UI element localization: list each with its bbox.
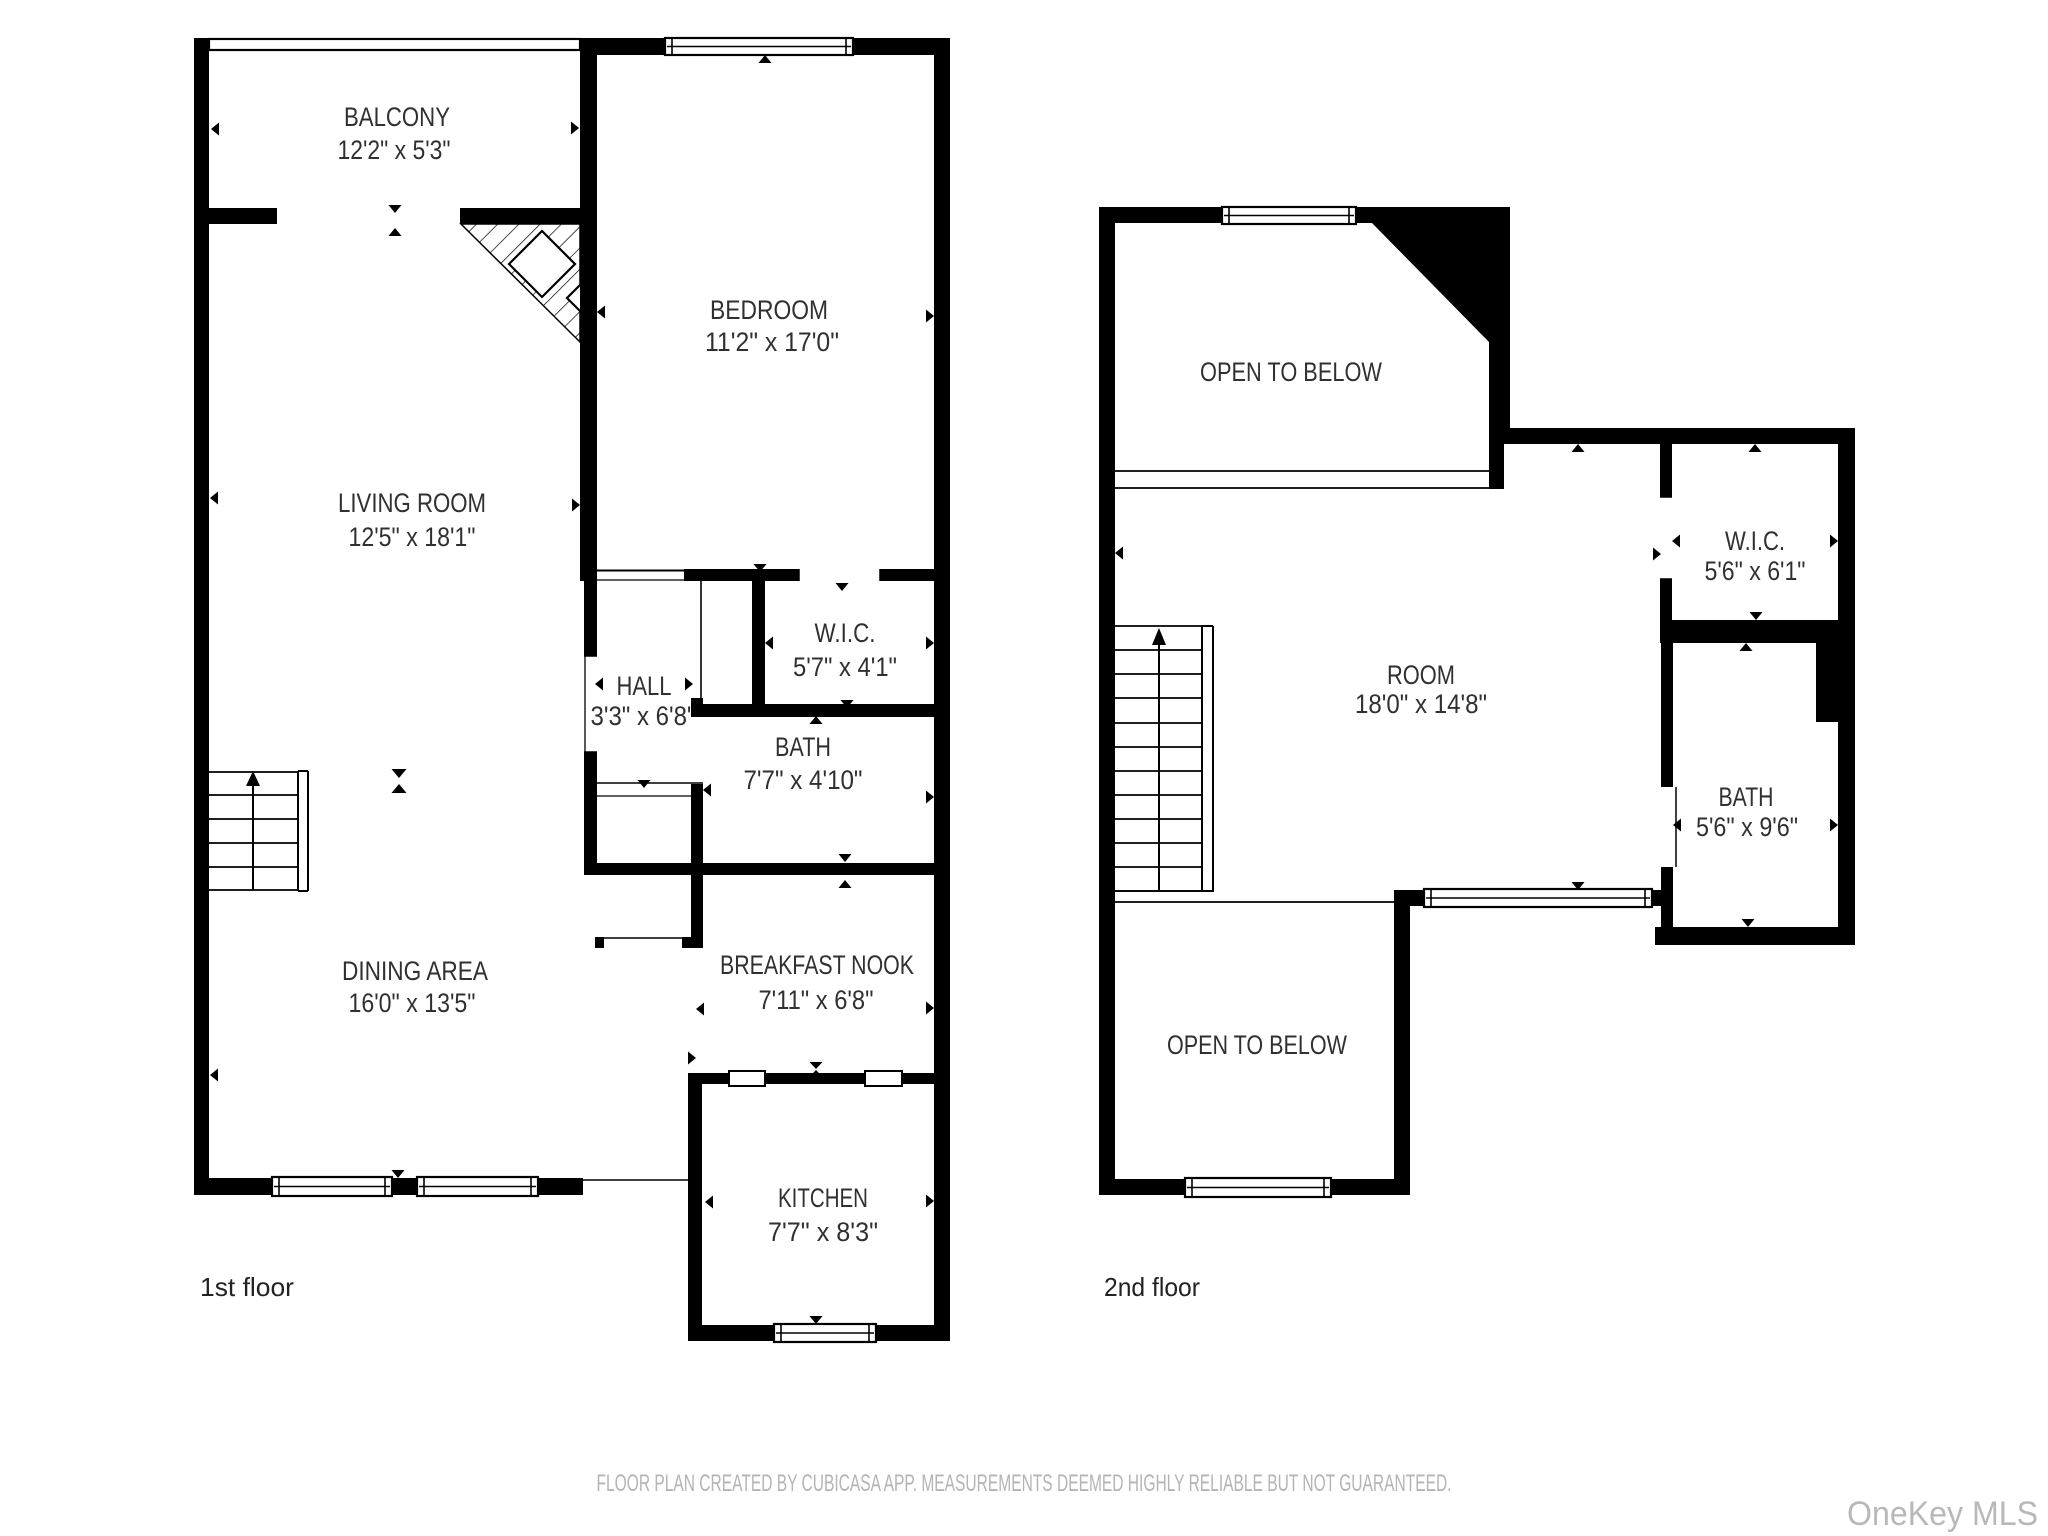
svg-text:BATH: BATH [1719, 782, 1774, 812]
svg-text:7'7" x 8'3": 7'7" x 8'3" [768, 1217, 878, 1247]
svg-text:3'3" x 6'8": 3'3" x 6'8" [591, 701, 696, 731]
svg-text:18'0" x 14'8": 18'0" x 14'8" [1355, 689, 1487, 719]
svg-text:OPEN TO BELOW: OPEN TO BELOW [1200, 357, 1382, 387]
svg-text:DINING AREA: DINING AREA [342, 956, 488, 986]
svg-text:OPEN TO BELOW: OPEN TO BELOW [1167, 1030, 1347, 1060]
svg-text:16'0" x 13'5": 16'0" x 13'5" [349, 988, 476, 1018]
svg-text:5'6" x 9'6": 5'6" x 9'6" [1696, 812, 1798, 842]
svg-text:BREAKFAST NOOK: BREAKFAST NOOK [720, 950, 914, 980]
svg-text:ROOM: ROOM [1387, 660, 1455, 690]
svg-text:2nd floor: 2nd floor [1104, 1272, 1200, 1302]
svg-text:W.I.C.: W.I.C. [815, 618, 876, 648]
svg-text:7'7" x 4'10": 7'7" x 4'10" [744, 765, 863, 795]
svg-text:12'5" x 18'1": 12'5" x 18'1" [349, 522, 476, 552]
svg-text:KITCHEN: KITCHEN [778, 1183, 868, 1213]
svg-text:12'2" x 5'3": 12'2" x 5'3" [338, 135, 451, 165]
svg-text:7'11" x 6'8": 7'11" x 6'8" [759, 985, 874, 1015]
svg-text:OneKey MLS: OneKey MLS [1847, 1495, 2038, 1533]
svg-text:5'7" x 4'1": 5'7" x 4'1" [793, 652, 897, 682]
svg-text:HALL: HALL [617, 671, 672, 701]
svg-text:11'2" x 17'0": 11'2" x 17'0" [705, 327, 839, 357]
svg-text:BEDROOM: BEDROOM [710, 295, 828, 325]
svg-text:BALCONY: BALCONY [344, 102, 450, 132]
svg-text:FLOOR PLAN CREATED BY CUBICASA: FLOOR PLAN CREATED BY CUBICASA APP. MEAS… [597, 1470, 1452, 1497]
svg-text:5'6" x 6'1": 5'6" x 6'1" [1705, 556, 1806, 586]
svg-text:W.I.C.: W.I.C. [1725, 526, 1785, 556]
svg-text:LIVING ROOM: LIVING ROOM [338, 488, 486, 518]
svg-text:BATH: BATH [775, 732, 831, 762]
svg-text:1st floor: 1st floor [200, 1272, 294, 1302]
